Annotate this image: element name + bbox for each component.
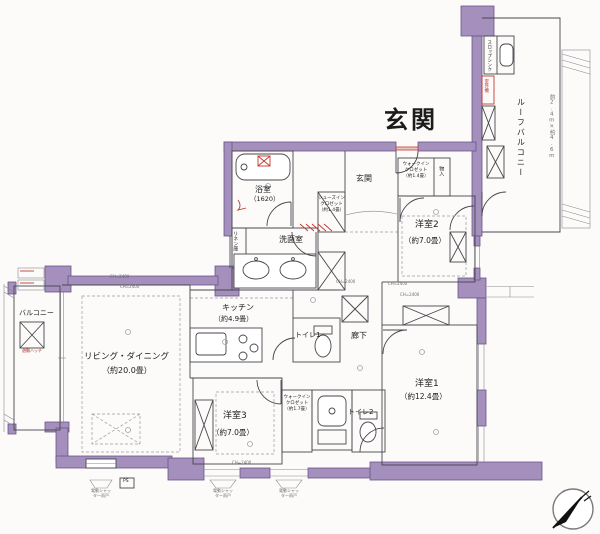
ps-label: PS — [123, 480, 129, 485]
kitchen-area — [190, 232, 398, 362]
escape-hatch-label: 避難ハッチ — [14, 349, 50, 353]
entrance-threshold — [396, 147, 418, 150]
living-area — [4, 268, 282, 488]
adjacent-balcony-strip — [562, 50, 590, 228]
ch-tag: CH=2400 — [336, 280, 355, 284]
compass-icon — [553, 489, 593, 529]
bedroom3-size: （約7.0畳） — [212, 429, 254, 437]
bedroom1-size: （約12.4畳） — [400, 393, 447, 401]
roof-balcony-area — [482, 18, 590, 232]
ch-tag: CH=2400 — [120, 285, 139, 289]
toilet2-label: トイレ2 — [348, 409, 373, 416]
bedroom1-door-arc — [383, 330, 407, 354]
ch-tag: CH=2400 — [232, 461, 251, 465]
kitchen-label: キッチン — [222, 304, 254, 312]
bedroom2-door-arc — [400, 198, 424, 222]
bedroom2-label: 洋室2 — [415, 221, 439, 230]
bedroom3-label: 洋室3 — [223, 412, 247, 421]
vanity-counter — [234, 254, 316, 288]
floor-plan-drawing — [0, 0, 600, 534]
floor-plan: 玄関 玄関 浴室 （1620） 洗面室 リネン庫 シューズイン クロゼット （約… — [0, 0, 600, 534]
shower-tray-icon — [318, 396, 346, 426]
toilet-icon — [360, 422, 376, 442]
roof-balcony-label: ルーフバルコニー — [516, 98, 524, 178]
kitchen-size: （約4.9畳） — [214, 316, 253, 323]
balcony-label: バルコニー — [19, 310, 54, 317]
ch-tag: CH=2400 — [110, 275, 129, 279]
bathroom-door-arc — [267, 202, 291, 226]
toilet1-label: トイレ1 — [295, 332, 320, 339]
bedroom2-size: （約7.0畳） — [404, 237, 446, 245]
bathroom-label: 浴室 — [255, 186, 271, 194]
storage-label: 物入 — [438, 166, 443, 176]
balcony-door-arc — [482, 192, 506, 216]
slop-sink-label: スロップシンク — [486, 40, 491, 72]
linen-label: リネン庫 — [232, 231, 237, 251]
slop-sink-icon — [500, 44, 513, 66]
roof-balcony-dimension: 約2.4m×約4.6m — [548, 94, 554, 159]
outdoor-unit-label: 室外機 — [483, 79, 488, 93]
living-label: リビング・ダイニング — [84, 353, 169, 362]
entrance-title: 玄関 — [384, 108, 438, 133]
bathroom-area — [232, 151, 345, 290]
ch-tag: CH=2400 — [400, 293, 419, 297]
entrance-hall-label: 玄関 — [356, 175, 372, 183]
bathtub-icon — [236, 154, 290, 180]
shower-icon — [238, 200, 246, 210]
bedroom1-area — [382, 282, 534, 465]
balcony-door-arc — [450, 206, 474, 230]
entrance-wic-label: ウォークイン — [399, 163, 433, 168]
bedroom1-label: 洋室1 — [415, 380, 439, 389]
toilet1-door-arc — [273, 338, 295, 360]
bathroom-size: （1620） — [250, 196, 280, 203]
ch-tag: CH=2400 — [388, 282, 407, 286]
inner-wic-label: ウォークイン — [280, 396, 314, 401]
living-size: （約20.0畳） — [102, 367, 152, 375]
shoes-closet-label: シューズイン — [317, 197, 346, 202]
washroom-label: 洗面室 — [279, 236, 303, 244]
hallway-label: 廊下 — [351, 332, 367, 340]
washer-space-hatch — [300, 224, 332, 231]
walls — [8, 6, 542, 480]
